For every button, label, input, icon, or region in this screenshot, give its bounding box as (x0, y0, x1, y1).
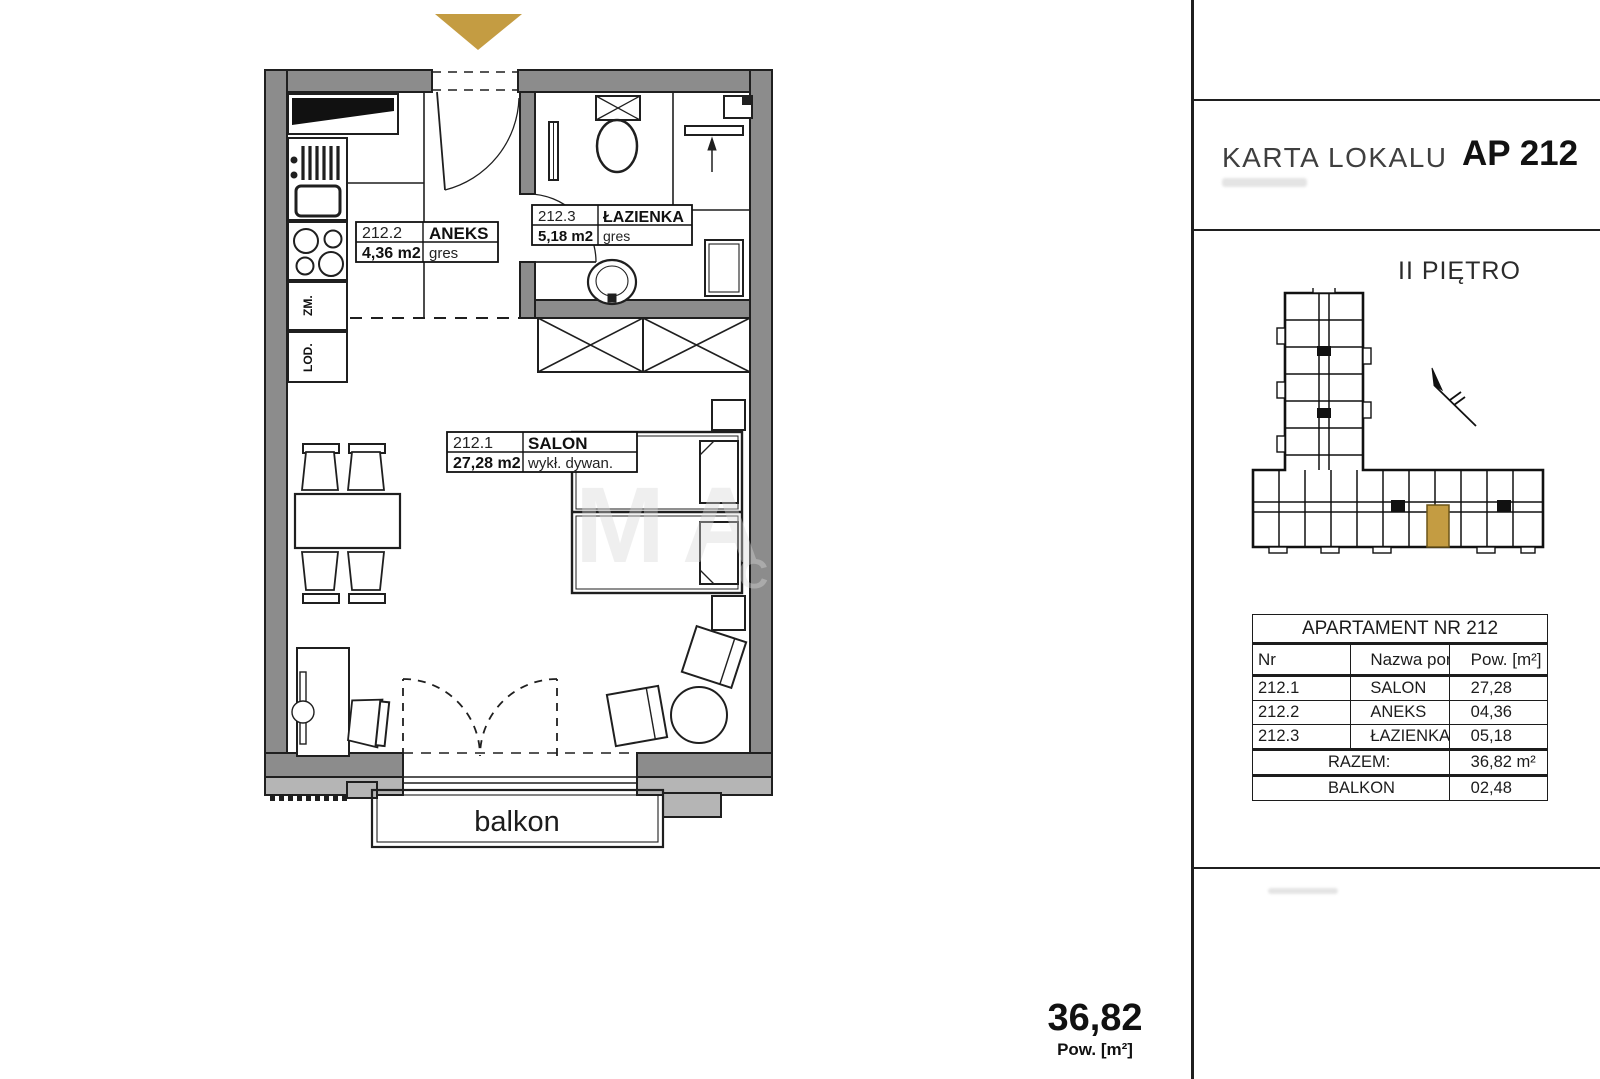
floor-minimap (1225, 288, 1550, 560)
fridge-cabinet: LOD. (288, 332, 347, 382)
panel-line-top (1191, 99, 1600, 101)
svg-text:27,28 m2: 27,28 m2 (453, 455, 521, 472)
fridge-label: LOD. (301, 343, 315, 372)
chair (348, 552, 385, 603)
dishwasher-label: ZM. (301, 295, 315, 316)
lounge-corner (607, 626, 746, 746)
svg-text:C: C (738, 550, 768, 597)
svg-text:gres: gres (603, 228, 630, 244)
page-title: KARTA LOKALU (1222, 142, 1448, 174)
svg-text:5,18 m2: 5,18 m2 (538, 228, 593, 245)
apartment-table: APARTAMENT NR 212 Nr Nazwa pom. Pow. [m²… (1252, 614, 1548, 801)
cooktop (288, 222, 347, 280)
col-header-area: Pow. [m²] (1449, 644, 1547, 676)
svg-text:ŁAZIENKA: ŁAZIENKA (603, 209, 684, 226)
table-title: APARTAMENT NR 212 (1253, 615, 1548, 644)
room-label-aneks: 212.2 ANEKS 4,36 m2 gres (356, 222, 498, 262)
kitchen-sink (288, 138, 347, 220)
svg-text:SALON: SALON (528, 434, 588, 453)
svg-text:212.3: 212.3 (538, 208, 576, 225)
wall-hatch (270, 794, 347, 801)
chair (348, 444, 385, 490)
redacted-text (1268, 888, 1338, 894)
nightstand (712, 596, 745, 630)
dashed-boundaries (350, 72, 637, 753)
nightstand (712, 400, 745, 430)
dishwasher-cabinet: ZM. (288, 282, 347, 330)
room-label-salon: 212.1 SALON 27,28 m2 wykł. dywan. (447, 432, 637, 472)
entrance-arrow-icon (435, 14, 522, 50)
svg-text:4,36 m2: 4,36 m2 (362, 245, 421, 262)
svg-text:M: M (575, 464, 665, 585)
table-row: 212.1 SALON 27,28 (1253, 676, 1548, 701)
total-area-value: 36,82 (1015, 1000, 1175, 1036)
armchair (607, 686, 667, 746)
col-header-nr: Nr (1253, 644, 1351, 676)
redacted-text (1222, 178, 1307, 187)
shower-unit (705, 240, 743, 296)
highlighted-unit (1427, 505, 1449, 547)
col-header-name: Nazwa pom. (1351, 644, 1449, 676)
panel-line-header (1191, 229, 1600, 231)
total-area-unit: Pow. [m²] (1015, 1040, 1175, 1060)
balcony-label: balkon (474, 806, 559, 838)
table-header-row: Nr Nazwa pom. Pow. [m²] (1253, 644, 1548, 676)
table-balcony-row: BALKON 02,48 (1253, 776, 1548, 801)
desk-chair (348, 696, 390, 748)
desk (292, 648, 389, 756)
chair (302, 552, 339, 603)
total-value: 36,82 m² (1449, 750, 1547, 776)
washbasin (588, 260, 636, 304)
dining-table (295, 494, 400, 548)
vent-shaft (724, 96, 752, 118)
chair (302, 444, 339, 490)
panel-line-bottom (1191, 867, 1600, 869)
svg-text:212.1: 212.1 (453, 435, 493, 452)
table-total-row: RAZEM: 36,82 m² (1253, 750, 1548, 776)
svg-text:wykł. dywan.: wykł. dywan. (527, 455, 613, 472)
table-title-row: APARTAMENT NR 212 (1253, 615, 1548, 644)
dining-table-set (295, 444, 400, 603)
panel-divider (1191, 0, 1194, 1079)
balcony-label: BALKON (1253, 776, 1450, 801)
svg-text:gres: gres (429, 245, 458, 262)
total-area-summary: 36,82 Pow. [m²] (1015, 1000, 1175, 1060)
wardrobe (538, 318, 750, 372)
table-row: 212.2 ANEKS 04,36 (1253, 701, 1548, 725)
coffee-table (671, 687, 727, 743)
floor-label: II PIĘTRO (1398, 257, 1521, 286)
balcony-value: 02,48 (1449, 776, 1547, 801)
balcony: balkon (372, 790, 663, 847)
apartment-number: AP 212 (1462, 134, 1578, 174)
karta-lokalu-page: { "colors": { "accent": "#c49c42", "wall… (0, 0, 1600, 1079)
svg-text:ANEKS: ANEKS (429, 224, 489, 243)
radiator (549, 122, 558, 180)
toilet (596, 96, 640, 172)
room-label-lazienka: 212.3 ŁAZIENKA 5,18 m2 gres (532, 205, 692, 245)
entry-door (437, 92, 519, 190)
armchair (682, 626, 746, 688)
north-arrow-icon (1432, 368, 1476, 426)
svg-text:212.2: 212.2 (362, 225, 402, 242)
table-row: 212.3 ŁAZIENKA 05,18 (1253, 725, 1548, 750)
total-label: RAZEM: (1253, 750, 1450, 776)
bathroom-shelf (685, 126, 743, 135)
balcony-door (403, 679, 557, 756)
floor-plan: ZM. LOD. (0, 0, 1192, 1079)
door-swing-arrow-icon (708, 138, 716, 172)
